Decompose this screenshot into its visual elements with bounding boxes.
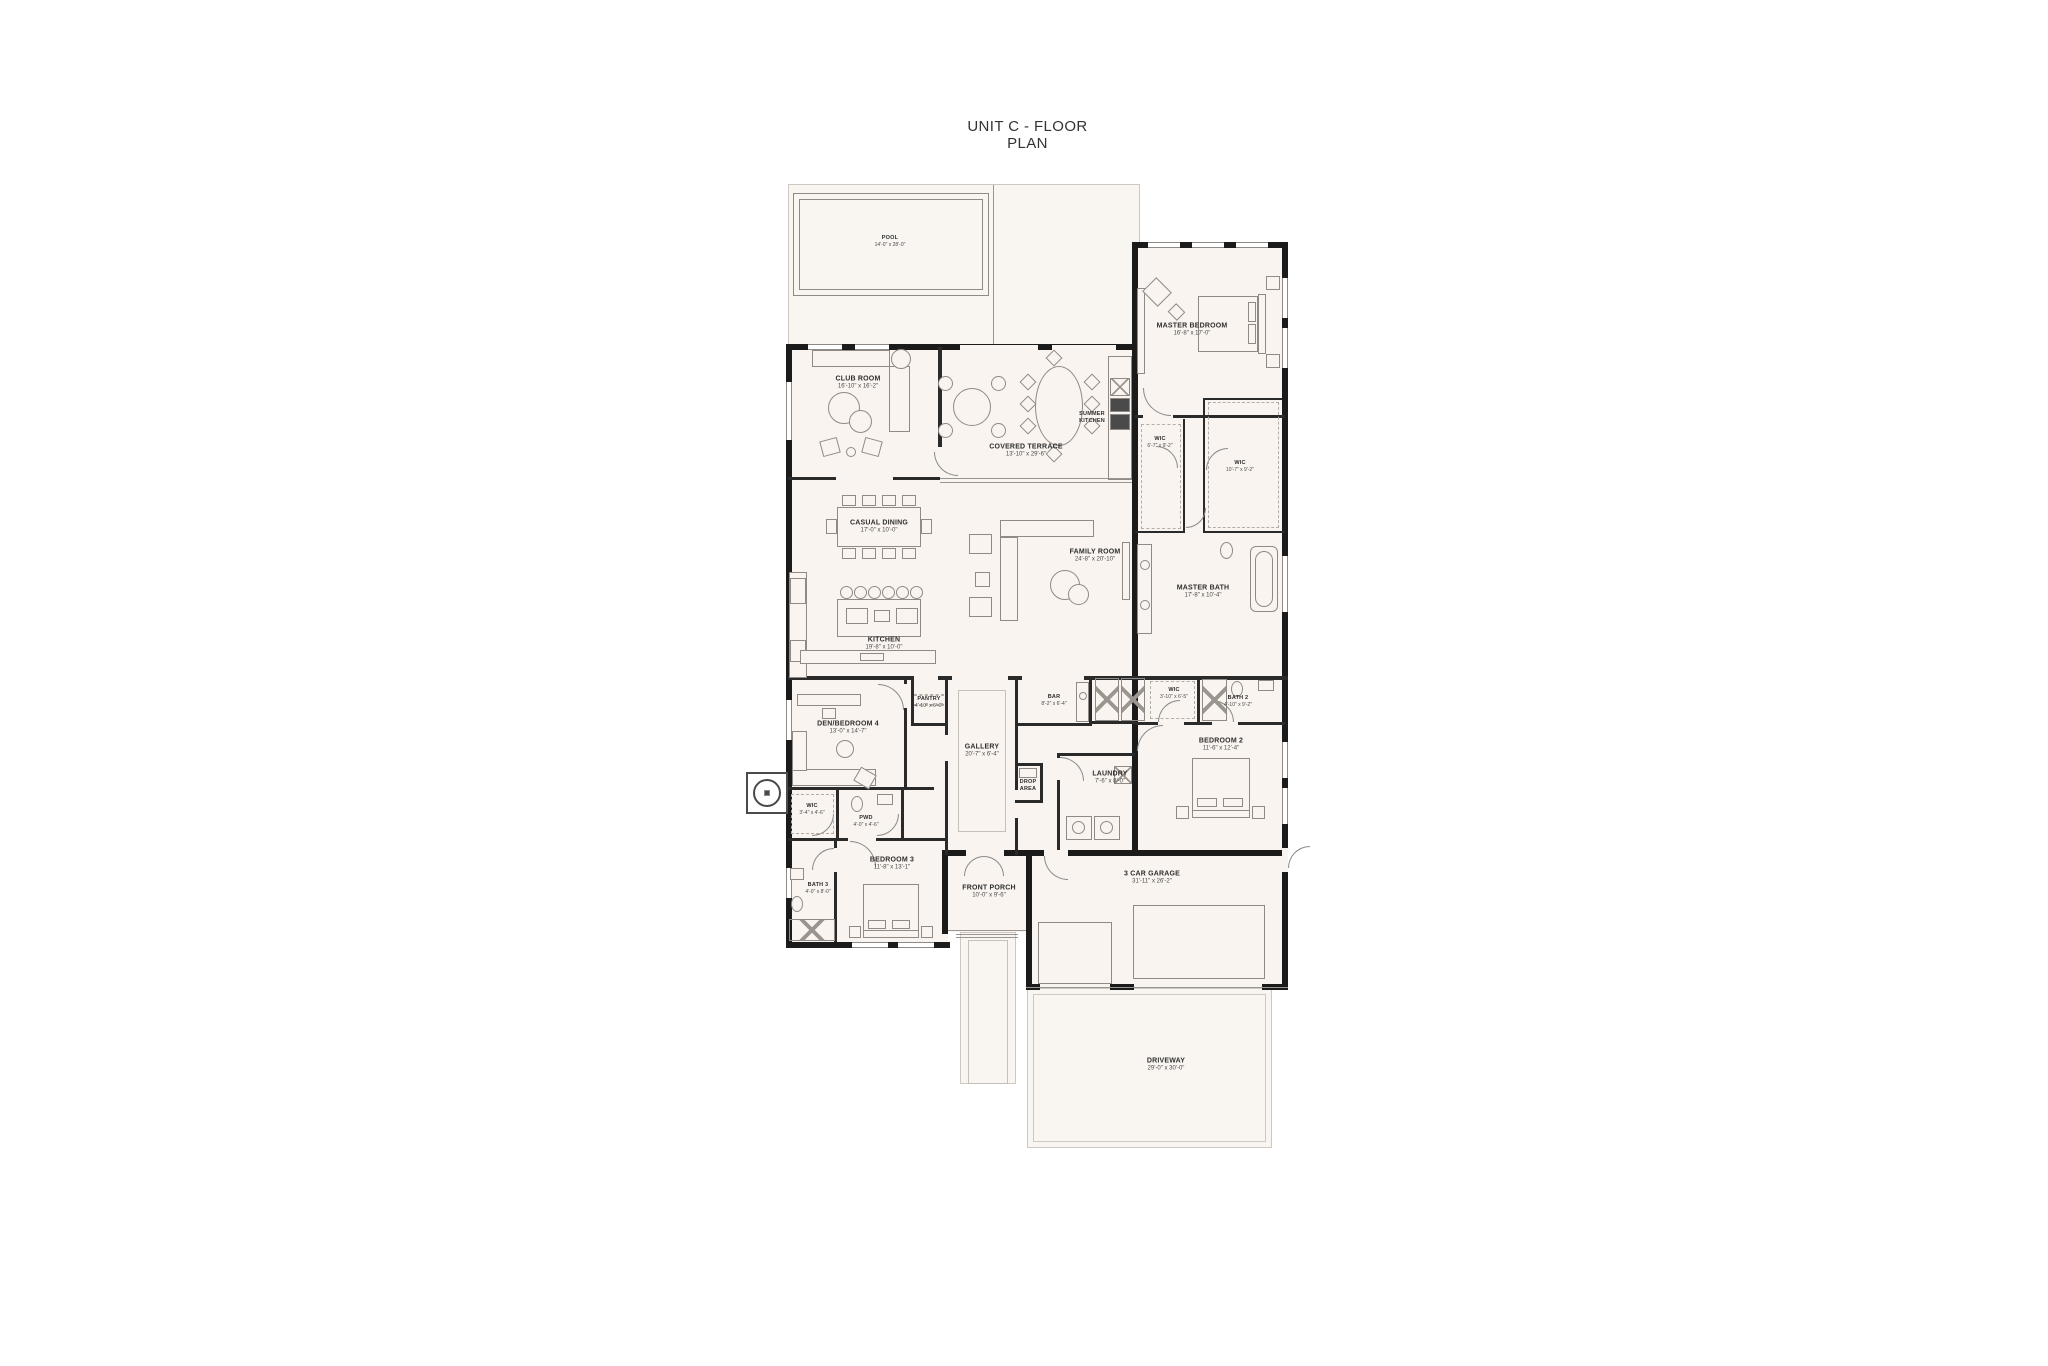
window-icon — [1282, 556, 1288, 612]
side-table-icon — [846, 447, 856, 457]
wall-segment — [836, 790, 839, 840]
bathtub-inner — [1255, 551, 1273, 607]
wall-segment — [1203, 398, 1282, 400]
appliance-icon — [1110, 398, 1130, 412]
oval-dining-table-icon — [1035, 366, 1083, 446]
wall-segment — [1089, 680, 1092, 726]
garage-door-sill-line — [1026, 987, 1288, 988]
room-label-wic-bedroom-3: WIC3'-4" x 4'-6" — [799, 803, 824, 817]
wall-segment — [1015, 680, 1018, 855]
chair-icon — [991, 423, 1006, 438]
room-label-bath-2: BATH 24'-10" x 9'-2" — [1224, 695, 1252, 709]
chair-icon — [862, 495, 876, 506]
wall-segment — [942, 850, 948, 934]
chair-icon — [842, 495, 856, 506]
room-label-pantry: PANTRY4'-10" x 6'-6" — [915, 696, 943, 710]
window-icon — [898, 942, 934, 948]
cooktop-icon — [896, 608, 918, 624]
door-opening — [834, 848, 837, 872]
sofa-icon — [889, 366, 910, 432]
chair-icon — [882, 548, 896, 559]
window-icon — [852, 942, 888, 948]
sink-icon — [1079, 692, 1087, 700]
window-icon — [786, 382, 792, 440]
nightstand-icon — [1266, 354, 1280, 368]
chair-icon — [862, 548, 876, 559]
ac-fan-hub — [764, 790, 770, 796]
garage-door-outline — [1133, 905, 1265, 979]
grill-icon — [1110, 378, 1130, 396]
room-label-bedroom-2: BEDROOM 211'-6" x 12'-4" — [1199, 737, 1243, 754]
sink-icon — [790, 868, 804, 880]
drop-bench-icon — [1019, 768, 1037, 778]
stool-icon — [854, 586, 867, 599]
wall-segment — [1135, 531, 1285, 533]
chair-icon — [938, 376, 953, 391]
door-opening — [1015, 790, 1018, 818]
pillow-icon — [1197, 798, 1217, 807]
wall-segment — [788, 787, 934, 790]
porch-step-line — [956, 934, 1018, 935]
window-icon — [1282, 788, 1288, 824]
wall-segment — [1004, 850, 1032, 856]
washer-door-icon — [1072, 821, 1085, 834]
shower-icon — [1095, 678, 1119, 721]
porch-step-line — [956, 937, 1018, 938]
wall-segment — [1032, 850, 1288, 856]
room-label-pool: POOL14'-0" x 28'-0" — [875, 235, 906, 249]
door-opening — [1185, 531, 1203, 533]
side-table-icon — [836, 740, 854, 758]
stool-icon — [896, 586, 909, 599]
chair-icon — [822, 708, 836, 719]
sofa-icon — [812, 350, 890, 367]
media-console-icon — [1122, 542, 1130, 600]
walkway-inner-line — [968, 940, 1008, 1084]
room-label-master-bedroom: MASTER BEDROOM16'-8" x 17'-0" — [1157, 322, 1228, 339]
room-label-covered-terrace: COVERED TERRACE13'-10" x 29'-6" — [989, 443, 1062, 460]
terrace-opening — [960, 345, 1038, 350]
wall-segment — [1197, 677, 1200, 724]
stool-icon — [882, 586, 895, 599]
page-title: UNIT C - FLOOR PLAN — [945, 118, 1110, 152]
room-label-family-room: FAMILY ROOM24'-8" x 20'-10" — [1070, 548, 1121, 565]
chair-icon — [826, 519, 837, 534]
armchair-icon — [969, 534, 992, 554]
room-label-den-bedroom-4: DEN/BEDROOM 413'-0" x 14'-7" — [817, 720, 879, 737]
window-icon — [1282, 278, 1288, 318]
dryer-door-icon — [1100, 821, 1113, 834]
room-label-wic-master-1: WIC6'-7" x 9'-2" — [1147, 436, 1172, 450]
room-label-wic-master-2: WIC10'-7" x 9'-2" — [1226, 460, 1254, 474]
room-label-drop-area: DROP AREA — [1015, 779, 1041, 793]
window-icon — [1148, 242, 1180, 248]
nightstand-icon — [1176, 806, 1189, 819]
room-label-master-bath: MASTER BATH17'-8" x 10'-4" — [1177, 584, 1230, 601]
pillow-icon — [1223, 798, 1243, 807]
sofa-icon — [792, 731, 807, 771]
stool-icon — [868, 586, 881, 599]
sink-icon — [877, 794, 893, 805]
pillow-icon — [892, 920, 910, 929]
shower-icon — [789, 919, 835, 941]
room-label-casual-dining: CASUAL DINING17'-0" x 10'-0" — [850, 519, 908, 536]
window-icon — [1192, 242, 1224, 248]
wall-segment — [945, 680, 948, 855]
window-icon — [1282, 328, 1288, 368]
chair-icon — [902, 495, 916, 506]
chair-icon — [921, 519, 932, 534]
cooktop-icon — [846, 608, 868, 624]
headboard-icon — [863, 930, 919, 938]
stool-icon — [910, 586, 923, 599]
door-opening — [1282, 848, 1288, 872]
room-label-bar: BAR8'-2" x 6'-4" — [1041, 694, 1066, 708]
headboard-icon — [1258, 294, 1266, 354]
sink-icon — [860, 653, 884, 661]
chair-icon — [991, 376, 1006, 391]
chair-icon — [938, 423, 953, 438]
room-label-front-porch: FRONT PORCH10'-0" x 9'-6" — [962, 884, 1016, 901]
sink-icon — [1258, 680, 1274, 691]
dresser-icon — [1137, 288, 1145, 374]
door-opening — [952, 676, 1008, 680]
room-label-driveway: DRIVEWAY29'-0" x 30'-0" — [1147, 1057, 1185, 1074]
sliding-door-line — [940, 482, 1132, 483]
pillow-icon — [1248, 324, 1256, 344]
terrace-opening — [1052, 345, 1116, 350]
appliance-icon — [1110, 414, 1130, 430]
wall-segment — [1018, 723, 1092, 726]
window-icon — [1236, 242, 1268, 248]
chair-icon — [882, 495, 896, 506]
pillow-icon — [868, 920, 886, 929]
vanity-icon — [1137, 544, 1152, 634]
porch-edge-line — [948, 930, 1026, 931]
sink-icon — [1140, 600, 1150, 610]
gallery-rug — [958, 690, 1006, 832]
room-label-gallery: GALLERY20'-7" x 6'-4" — [965, 743, 1000, 760]
round-table-icon — [953, 388, 991, 426]
coffee-table-icon — [849, 410, 872, 433]
wall-segment — [911, 680, 914, 726]
refrigerator-icon — [790, 578, 806, 604]
side-table-icon — [891, 349, 911, 369]
room-label-wic-bedroom-2: WIC3'-10" x 6'-5" — [1160, 687, 1188, 701]
wall-segment — [1026, 850, 1032, 990]
door-opening — [1022, 676, 1084, 680]
toilet-icon — [791, 896, 803, 912]
room-label-summer-kitchen: SUMMER KITCHEN — [1074, 411, 1110, 425]
door-opening — [904, 684, 907, 708]
floor-plan-page: UNIT C - FLOOR PLAN — [0, 0, 2048, 1366]
sofa-icon — [1000, 520, 1094, 537]
room-label-club-room: CLUB ROOM16'-10" x 16'-2" — [836, 375, 881, 392]
toilet-icon — [851, 796, 863, 812]
garage-door-outline — [1038, 922, 1112, 984]
wall-segment — [901, 790, 904, 840]
deck-edge-line — [993, 185, 994, 346]
desk-icon — [797, 694, 861, 706]
door-opening — [945, 735, 948, 761]
wall-segment — [893, 477, 940, 480]
chair-icon — [902, 548, 916, 559]
door-opening — [1212, 722, 1238, 725]
side-table-icon — [975, 572, 990, 587]
room-label-bath-3: BATH 34'-0" x 8'-0" — [805, 882, 830, 896]
pillow-icon — [1248, 302, 1256, 322]
nightstand-icon — [1266, 276, 1280, 290]
wall-segment — [788, 477, 836, 480]
nightstand-icon — [921, 926, 933, 938]
shower-icon — [1121, 678, 1145, 721]
room-label-pwd: PWD4'-0" x 4'-6" — [853, 815, 878, 829]
nightstand-icon — [849, 926, 861, 938]
room-label-laundry: LAUNDRY7'-6" x 8'-0" — [1092, 770, 1127, 787]
wall-segment — [1183, 419, 1185, 531]
door-swing-icon — [1288, 846, 1310, 868]
sink-icon — [874, 610, 890, 622]
wall-segment — [1015, 800, 1043, 803]
room-label-kitchen: KITCHEN19'-8" x 10'-0" — [866, 636, 903, 653]
wall-segment — [1057, 753, 1135, 756]
door-opening — [914, 676, 938, 680]
sink-icon — [1140, 560, 1150, 570]
room-label-bedroom-3: BEDROOM 311'-8" x 13'-1" — [870, 856, 914, 873]
room-label-garage: 3 CAR GARAGE31'-11" x 26'-2" — [1124, 870, 1180, 887]
wall-segment — [1092, 721, 1135, 724]
coffee-table-icon — [1068, 584, 1089, 605]
sliding-door-line — [940, 478, 1132, 479]
chair-icon — [842, 548, 856, 559]
sofa-icon — [1000, 537, 1018, 621]
window-icon — [1282, 742, 1288, 778]
wall-segment — [911, 723, 948, 726]
nightstand-icon — [1252, 806, 1265, 819]
headboard-icon — [1192, 810, 1250, 818]
toilet-icon — [1220, 542, 1233, 559]
wall-segment — [1015, 763, 1043, 766]
armchair-icon — [969, 597, 992, 617]
bar-counter-icon — [1076, 682, 1089, 722]
stool-icon — [840, 586, 853, 599]
